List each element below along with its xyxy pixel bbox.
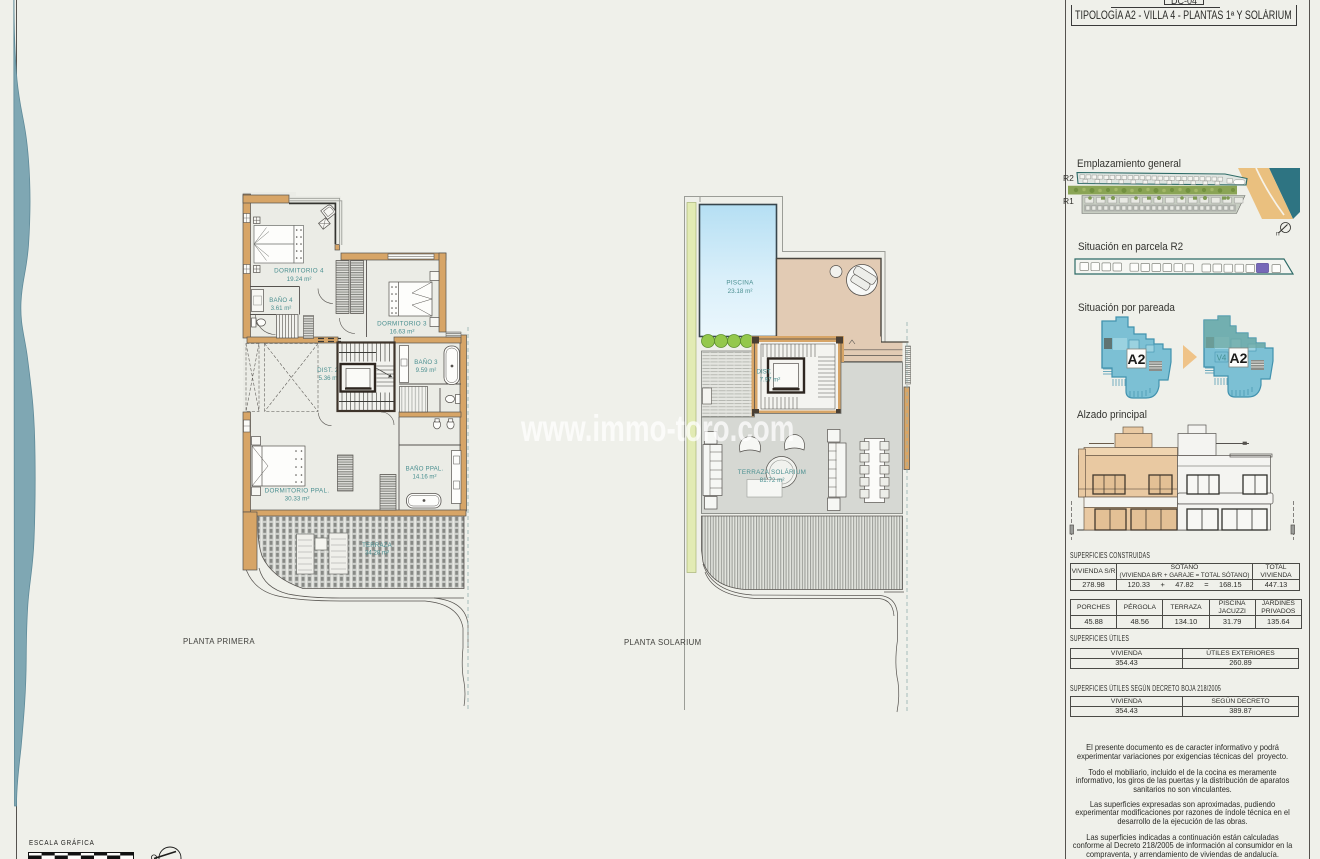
svg-text:23.18 m²: 23.18 m² [728, 288, 753, 295]
svg-text:TERRAZA: TERRAZA [362, 542, 393, 549]
svg-text:A2: A2 [1230, 350, 1248, 366]
svg-text:DORMITORIO PPAL.: DORMITORIO PPAL. [265, 488, 330, 495]
svg-text:30.33 m²: 30.33 m² [285, 496, 310, 503]
svg-text:n: n [1276, 231, 1280, 238]
svg-text:BAÑO 4: BAÑO 4 [269, 297, 293, 304]
svg-text:BAÑO 3: BAÑO 3 [414, 359, 438, 366]
svg-text:PLANTA SOLARIUM: PLANTA SOLARIUM [624, 638, 701, 647]
svg-text:A2: A2 [1128, 351, 1146, 367]
svg-text:16.63 m²: 16.63 m² [390, 329, 415, 336]
svg-text:DIST.: DIST. [757, 369, 772, 376]
svg-text:5.36 m²: 5.36 m² [319, 375, 340, 382]
svg-text:3.61 m²: 3.61 m² [271, 305, 292, 312]
svg-text:TERRAZA SOLÁRIUM: TERRAZA SOLÁRIUM [738, 467, 806, 476]
svg-text:V4: V4 [1217, 354, 1227, 363]
svg-text:81.72 m²: 81.72 m² [760, 477, 785, 484]
svg-text:34.28 m²: 34.28 m² [365, 550, 389, 557]
svg-text:14.16 m²: 14.16 m² [412, 474, 436, 481]
svg-text:BAÑO PPAL.: BAÑO PPAL. [406, 466, 444, 473]
svg-text:7.97 m²: 7.97 m² [760, 377, 781, 384]
svg-text:9.59 m²: 9.59 m² [416, 367, 437, 374]
svg-text:PISCINA: PISCINA [726, 280, 754, 287]
svg-text:DORMITORIO 3: DORMITORIO 3 [377, 321, 427, 328]
svg-text:PLANTA PRIMERA: PLANTA PRIMERA [183, 637, 255, 646]
svg-text:19.24 m²: 19.24 m² [287, 276, 312, 283]
svg-text:DORMITORIO 4: DORMITORIO 4 [274, 268, 324, 275]
